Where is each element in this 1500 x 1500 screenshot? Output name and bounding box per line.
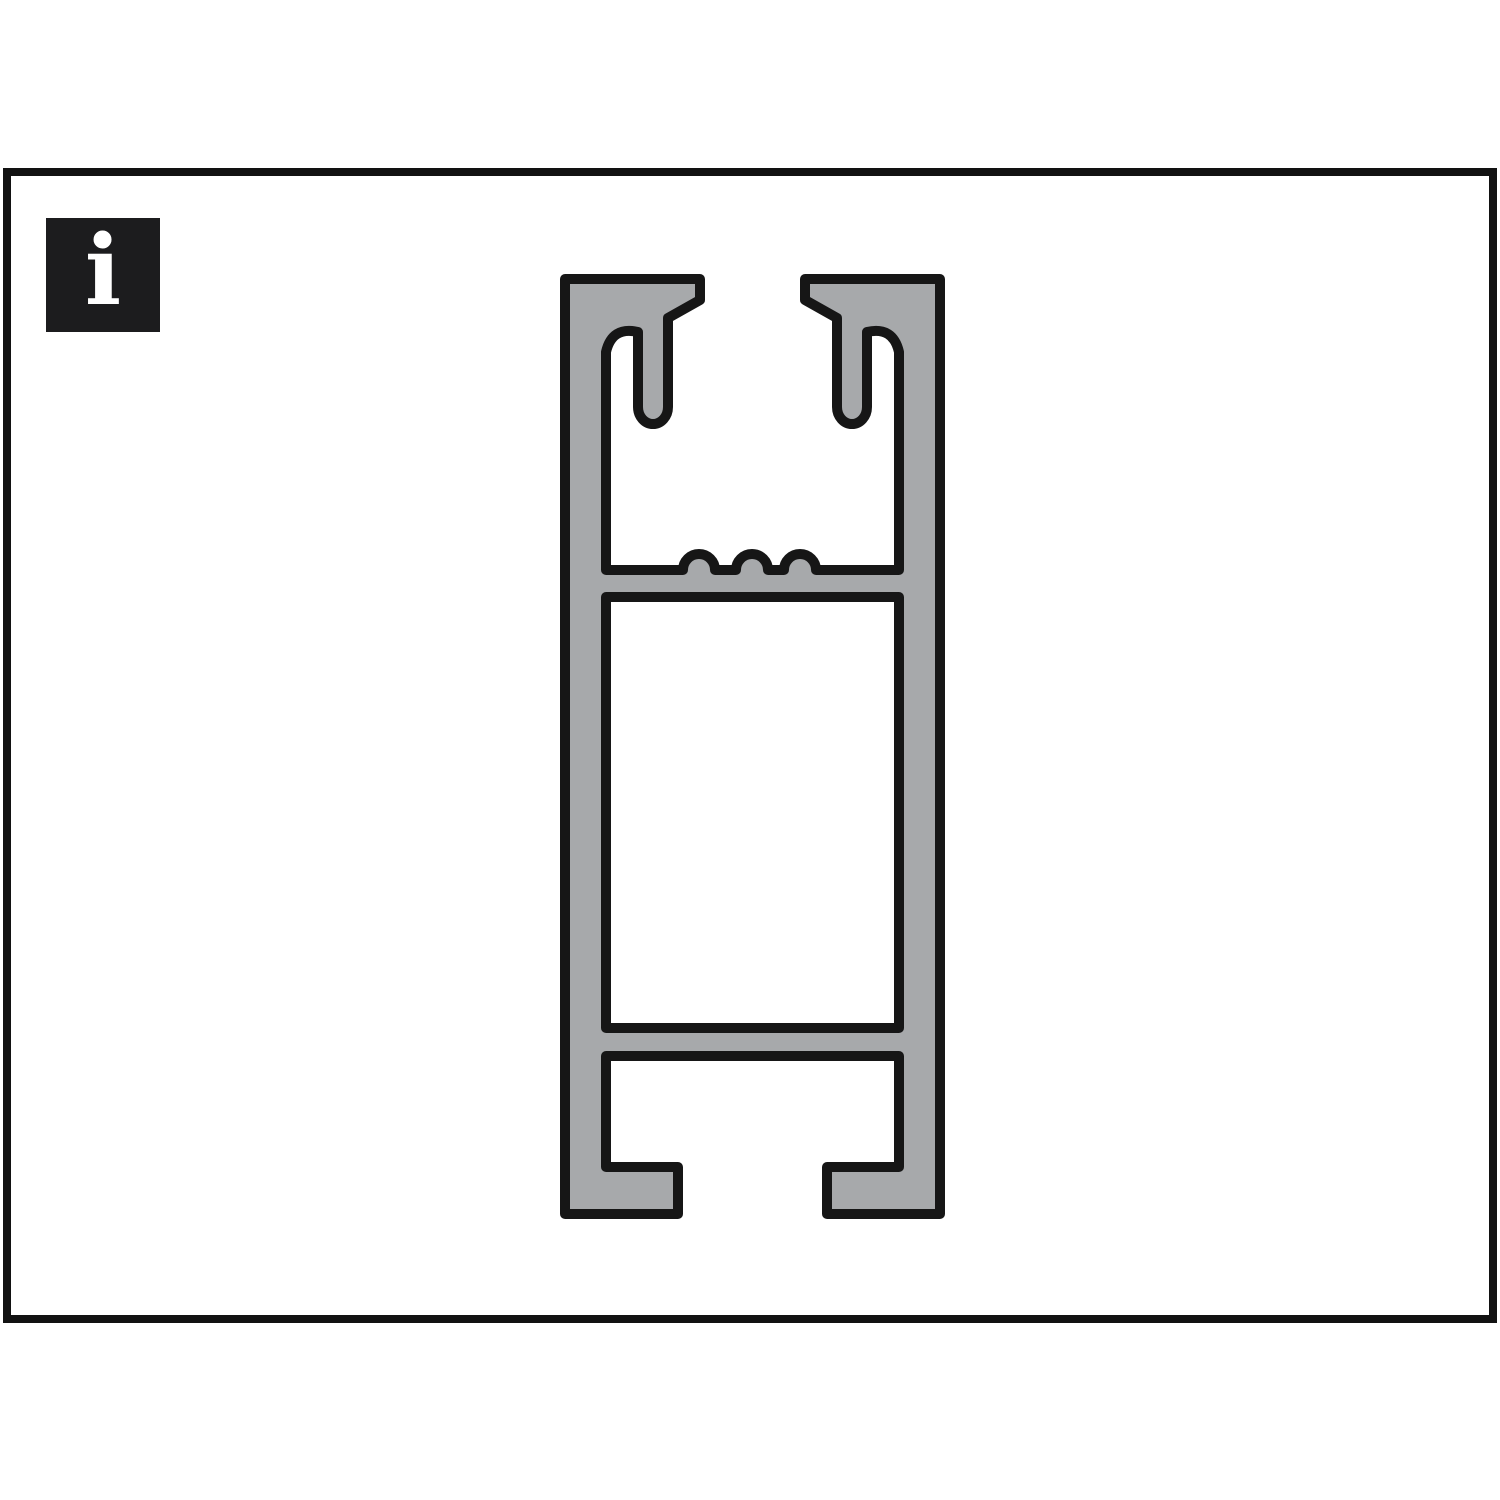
profile-cross-section-shape: [565, 279, 940, 1214]
profile-diagram: [0, 0, 1500, 1500]
page: i: [0, 0, 1500, 1500]
